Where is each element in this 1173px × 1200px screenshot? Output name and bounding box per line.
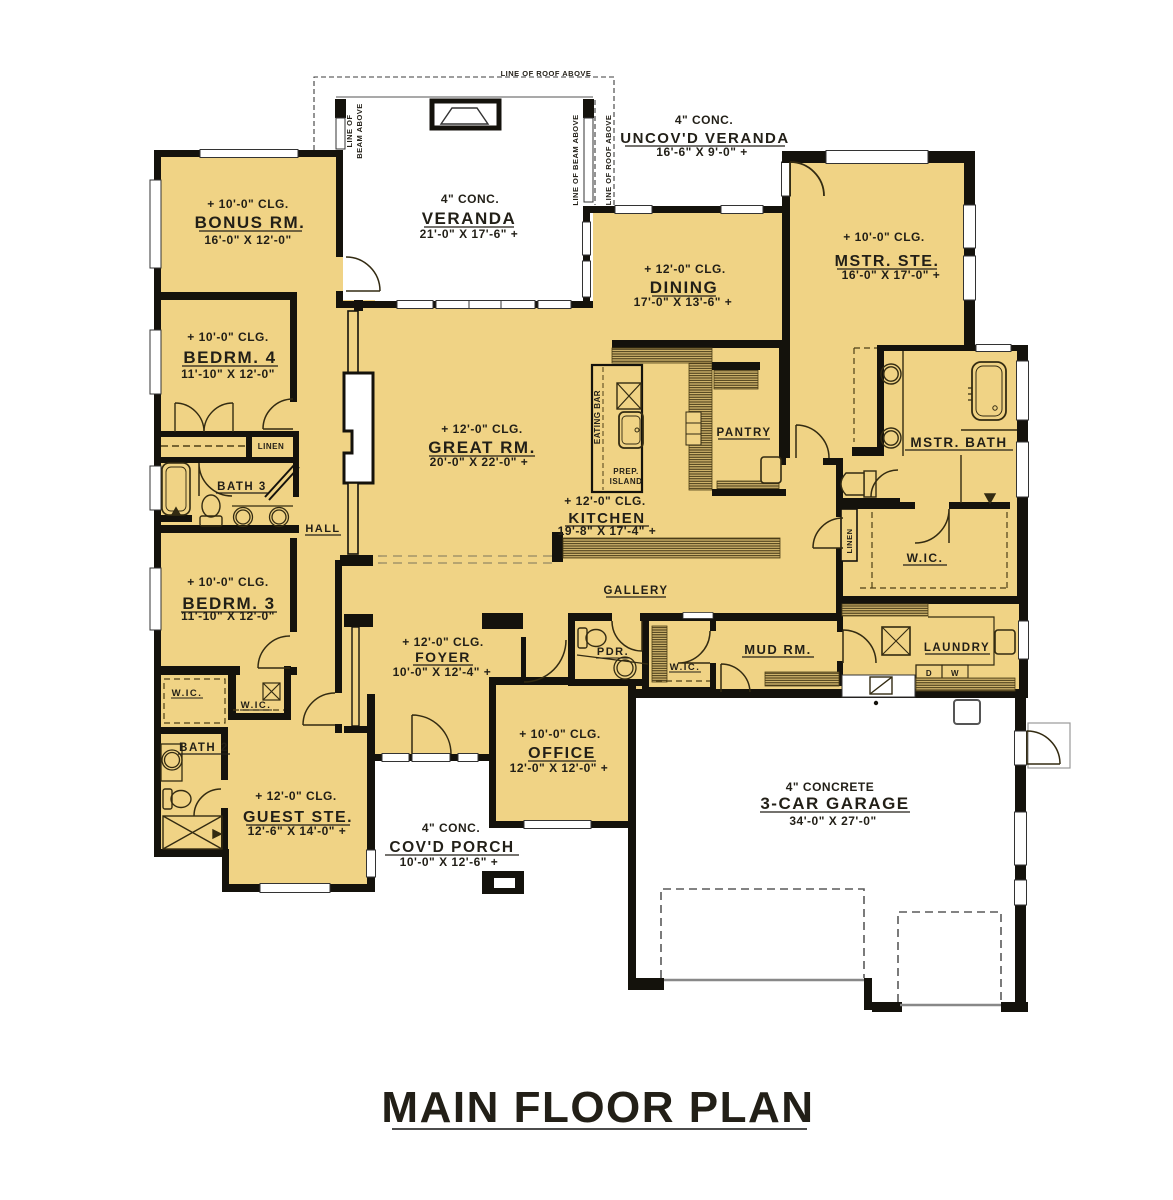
svg-text:4" CONC.: 4" CONC.: [675, 113, 733, 127]
svg-text:+ 12'-0" CLG.: + 12'-0" CLG.: [644, 262, 725, 276]
svg-text:+ 12'-0" CLG.: + 12'-0" CLG.: [441, 422, 522, 436]
svg-text:EATING BAR: EATING BAR: [593, 390, 602, 444]
svg-text:12'-6" X 14'-0" +: 12'-6" X 14'-0" +: [248, 824, 347, 838]
svg-text:LINE OF: LINE OF: [345, 114, 354, 147]
svg-text:LINE OF ROOF ABOVE: LINE OF ROOF ABOVE: [501, 69, 592, 78]
svg-text:+ 10'-0" CLG.: + 10'-0" CLG.: [187, 330, 268, 344]
svg-text:17'-0" X 13'-6" +: 17'-0" X 13'-6" +: [634, 295, 733, 309]
svg-text:FOYER: FOYER: [415, 649, 471, 665]
svg-text:W.IC.: W.IC.: [670, 662, 701, 673]
svg-text:+ 10'-0" CLG.: + 10'-0" CLG.: [519, 727, 600, 741]
svg-text:MUD RM.: MUD RM.: [744, 642, 812, 657]
svg-text:W.IC.: W.IC.: [241, 700, 272, 711]
svg-text:34'-0" X 27'-0": 34'-0" X 27'-0": [789, 814, 876, 828]
svg-text:+ 12'-0" CLG.: + 12'-0" CLG.: [402, 635, 483, 649]
svg-text:MAIN FLOOR PLAN: MAIN FLOOR PLAN: [381, 1083, 814, 1132]
svg-text:HALL: HALL: [305, 523, 340, 535]
svg-text:11'-10" X 12'-0": 11'-10" X 12'-0": [181, 609, 275, 623]
svg-text:16'-6" X 9'-0" +: 16'-6" X 9'-0" +: [656, 145, 747, 159]
svg-text:20'-0" X 22'-0" +: 20'-0" X 22'-0" +: [430, 455, 529, 469]
svg-text:VERANDA: VERANDA: [422, 209, 517, 228]
svg-text:+ 10'-0" CLG.: + 10'-0" CLG.: [187, 575, 268, 589]
svg-text:+ 10'-0" CLG.: + 10'-0" CLG.: [843, 230, 924, 244]
svg-text:MSTR. BATH: MSTR. BATH: [910, 435, 1007, 450]
svg-text:4" CONC.: 4" CONC.: [422, 821, 480, 835]
svg-text:12'-0" X 12'-0" +: 12'-0" X 12'-0" +: [510, 761, 609, 775]
svg-text:W: W: [951, 669, 959, 678]
svg-text:BEDRM. 4: BEDRM. 4: [183, 348, 276, 367]
svg-text:11'-10" X 12'-0": 11'-10" X 12'-0": [181, 367, 275, 381]
svg-text:GALLERY: GALLERY: [603, 585, 668, 597]
svg-text:ISLAND: ISLAND: [610, 477, 643, 486]
svg-text:LINE OF BEAM ABOVE: LINE OF BEAM ABOVE: [571, 114, 580, 205]
svg-text:W.IC.: W.IC.: [907, 551, 944, 565]
svg-text:D: D: [926, 669, 932, 678]
svg-text:3-CAR GARAGE: 3-CAR GARAGE: [760, 794, 909, 813]
svg-text:COV'D PORCH: COV'D PORCH: [389, 839, 514, 856]
svg-text:16'-0" X 17'-0" +: 16'-0" X 17'-0" +: [842, 268, 941, 282]
svg-text:LINEN: LINEN: [845, 529, 854, 554]
svg-text:21'-0" X 17'-6" +: 21'-0" X 17'-6" +: [420, 227, 519, 241]
svg-text:16'-0" X 12'-0": 16'-0" X 12'-0": [204, 233, 291, 247]
svg-text:4" CONC.: 4" CONC.: [441, 192, 499, 206]
svg-text:BONUS RM.: BONUS RM.: [195, 213, 306, 232]
svg-text:10'-0" X 12'-6" +: 10'-0" X 12'-6" +: [400, 855, 499, 869]
svg-text:4" CONCRETE: 4" CONCRETE: [786, 780, 875, 794]
svg-text:LINEN: LINEN: [258, 442, 285, 451]
svg-text:10'-0" X 12'-4" +: 10'-0" X 12'-4" +: [393, 665, 492, 679]
svg-text:PREP.: PREP.: [613, 467, 638, 476]
svg-text:W.IC.: W.IC.: [172, 688, 203, 699]
svg-text:LINE OF ROOF ABOVE: LINE OF ROOF ABOVE: [604, 115, 613, 206]
svg-text:BEAM ABOVE: BEAM ABOVE: [355, 103, 364, 159]
svg-text:+ 10'-0" CLG.: + 10'-0" CLG.: [207, 197, 288, 211]
svg-text:PDR.: PDR.: [597, 646, 629, 658]
svg-text:PANTRY: PANTRY: [717, 427, 772, 439]
svg-text:BATH 2: BATH 2: [179, 742, 229, 754]
svg-text:+ 12'-0" CLG.: + 12'-0" CLG.: [255, 789, 336, 803]
svg-text:LAUNDRY: LAUNDRY: [924, 642, 990, 654]
svg-text:OFFICE: OFFICE: [528, 745, 596, 762]
svg-text:+ 12'-0" CLG.: + 12'-0" CLG.: [564, 494, 645, 508]
svg-text:BATH 3: BATH 3: [217, 481, 267, 493]
svg-text:19'-8" X 17'-4" +: 19'-8" X 17'-4" +: [558, 524, 657, 538]
